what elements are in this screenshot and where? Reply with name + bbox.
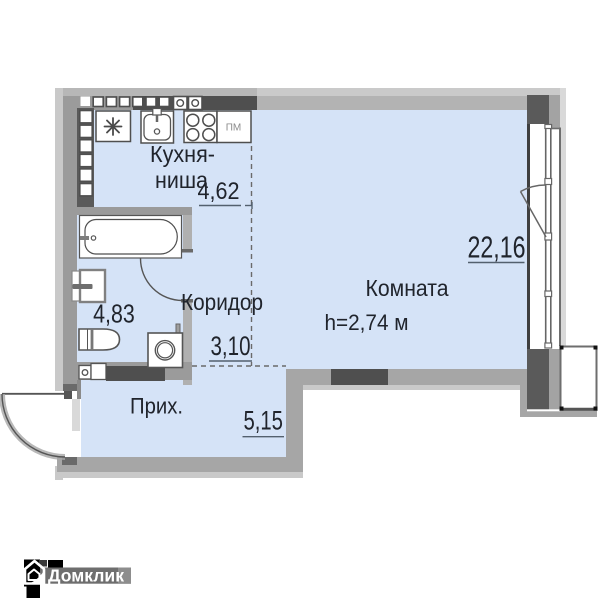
svg-text:Домклик: Домклик: [48, 566, 124, 586]
svg-text:Коридор: Коридор: [181, 289, 263, 315]
svg-text:3,10: 3,10: [211, 331, 251, 361]
svg-text:Прих.: Прих.: [130, 394, 183, 419]
svg-text:h=2,74 м: h=2,74 м: [325, 310, 409, 335]
svg-text:5,15: 5,15: [243, 406, 283, 436]
svg-text:ПМ: ПМ: [226, 123, 242, 134]
svg-text:22,16: 22,16: [468, 231, 526, 265]
svg-text:Комната: Комната: [366, 275, 450, 301]
svg-text:Кухня-: Кухня-: [150, 141, 215, 167]
svg-text:4,83: 4,83: [93, 301, 135, 329]
svg-text:4,62: 4,62: [198, 178, 240, 205]
